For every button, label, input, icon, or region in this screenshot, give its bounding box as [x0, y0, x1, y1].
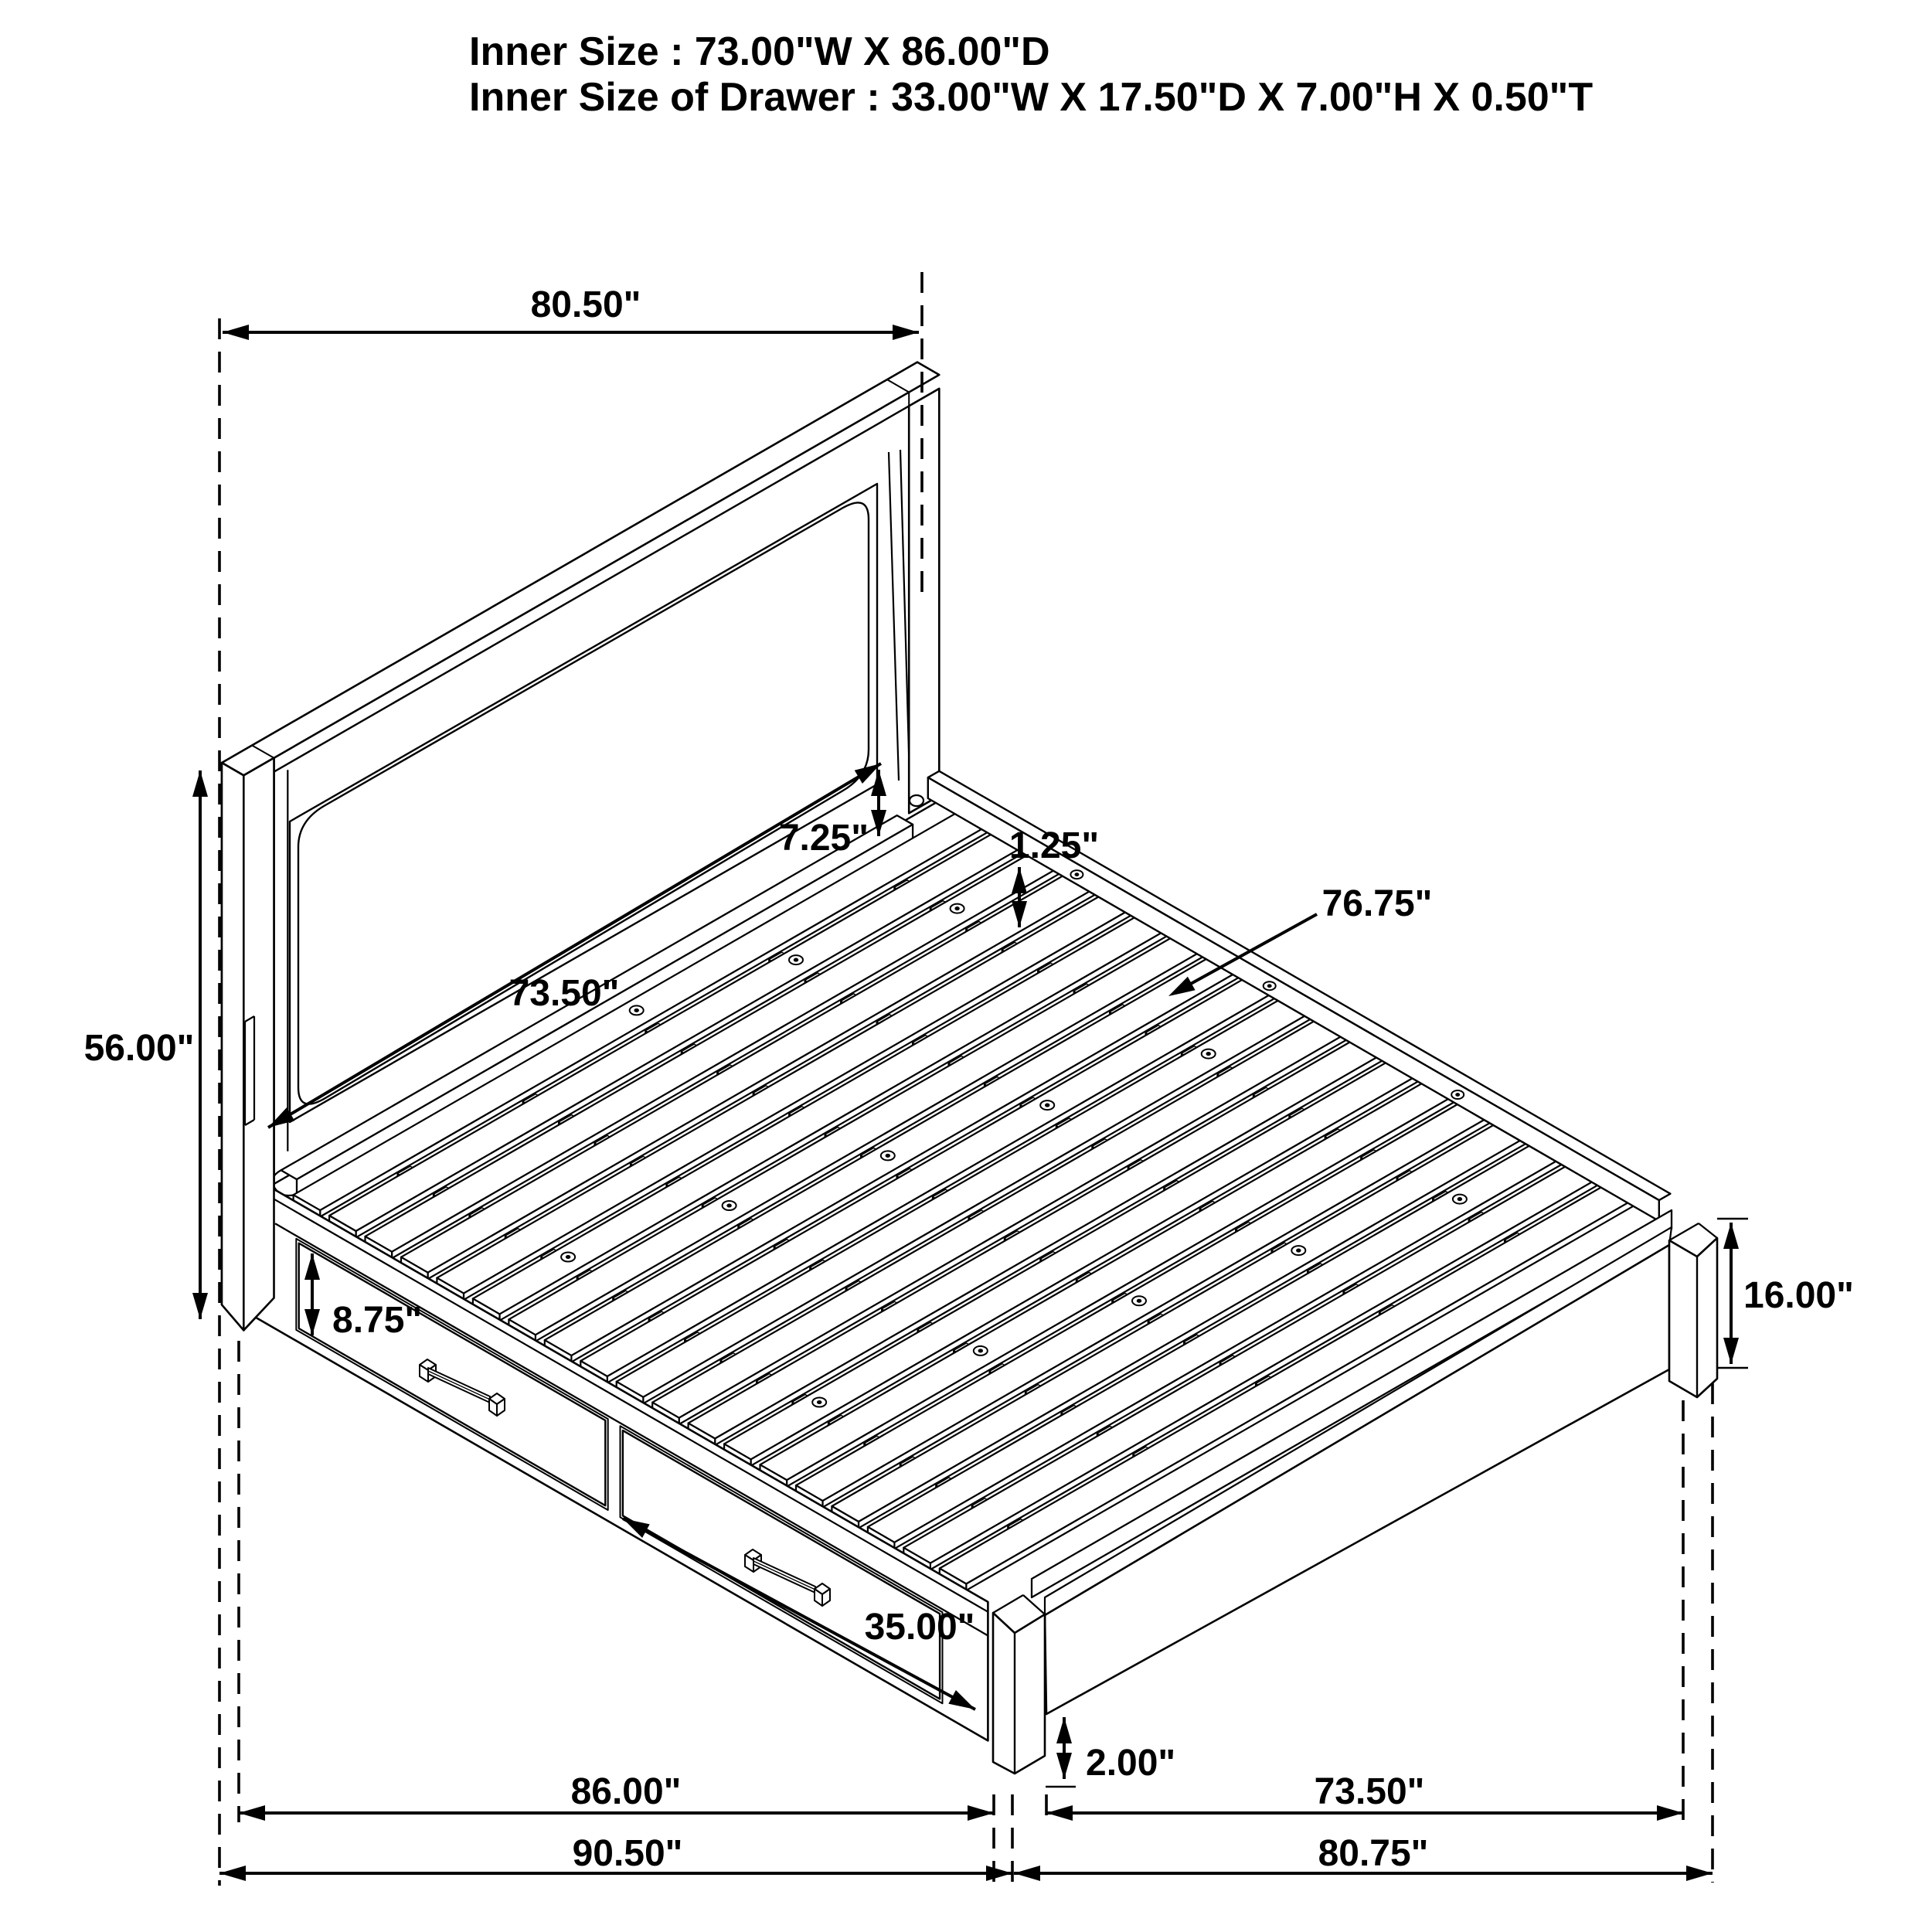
svg-text:2.00": 2.00"	[1086, 1743, 1175, 1784]
svg-text:76.75": 76.75"	[1322, 883, 1433, 924]
svg-text:8.75": 8.75"	[332, 1300, 422, 1341]
svg-text:73.50": 73.50"	[509, 973, 620, 1014]
svg-text:80.50": 80.50"	[531, 284, 641, 325]
svg-text:35.00": 35.00"	[865, 1607, 975, 1648]
svg-text:Inner Size : 73.00"W X 86.00"D: Inner Size : 73.00"W X 86.00"D	[469, 29, 1050, 74]
svg-text:1.25": 1.25"	[1009, 825, 1099, 866]
svg-text:56.00": 56.00"	[84, 1028, 195, 1069]
svg-text:90.50": 90.50"	[573, 1833, 683, 1874]
svg-text:73.50": 73.50"	[1315, 1771, 1425, 1812]
svg-text:86.00": 86.00"	[571, 1771, 682, 1812]
svg-text:Inner Size of Drawer : 33.00"W: Inner Size of Drawer : 33.00"W X 17.50"D…	[469, 75, 1593, 120]
svg-text:7.25": 7.25"	[779, 818, 869, 859]
svg-text:80.75": 80.75"	[1318, 1833, 1429, 1874]
svg-text:16.00": 16.00"	[1743, 1275, 1854, 1316]
